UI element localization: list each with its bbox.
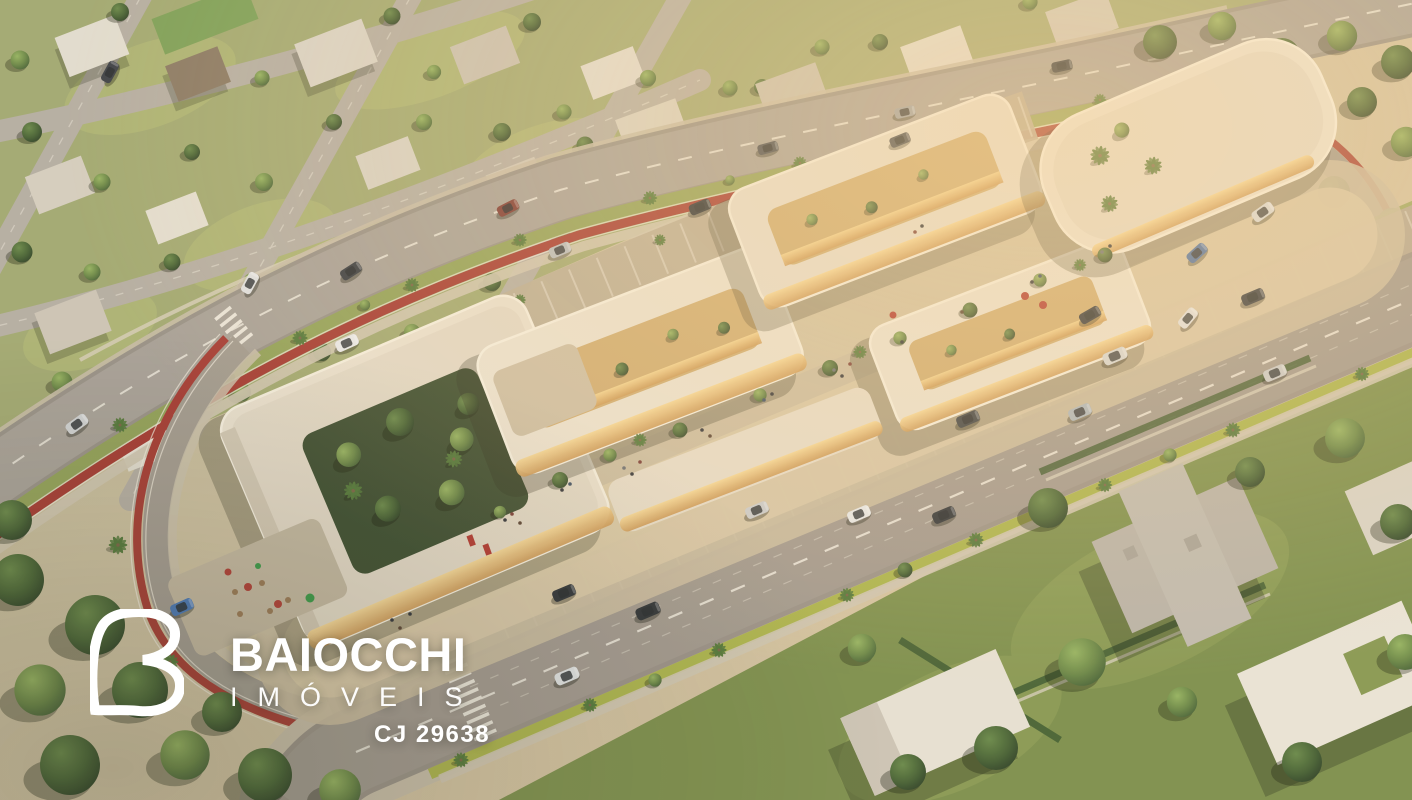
watermark: BAIOCCHI IMÓVEIS CJ 29638	[90, 599, 490, 749]
brand-name: BAIOCCHI	[230, 631, 490, 678]
aerial-render-photo: BAIOCCHI IMÓVEIS CJ 29638	[0, 0, 1412, 800]
brand-subtitle: IMÓVEIS	[230, 682, 490, 713]
brand-license: CJ 29638	[374, 721, 490, 749]
watermark-text-block: BAIOCCHI IMÓVEIS CJ 29638	[230, 599, 490, 749]
b-outline-icon	[90, 609, 184, 717]
